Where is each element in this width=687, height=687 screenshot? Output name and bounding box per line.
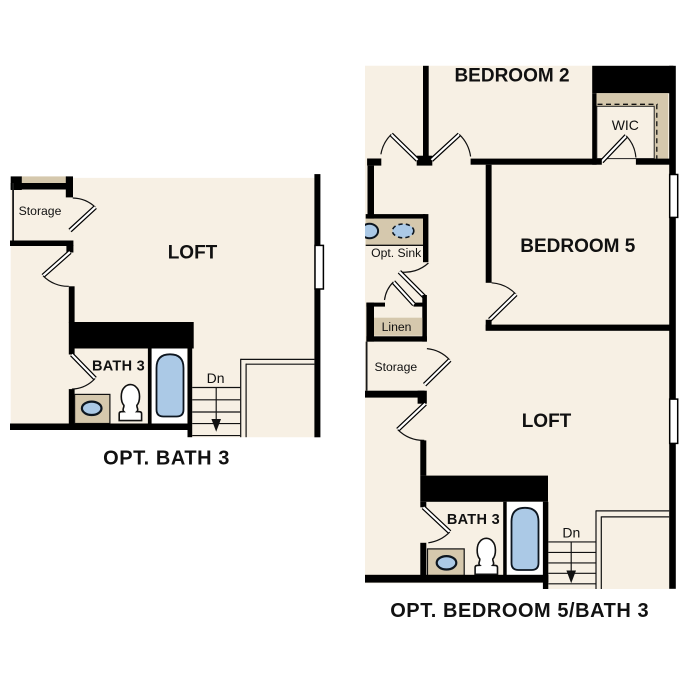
svg-text:BEDROOM 5: BEDROOM 5	[520, 236, 636, 257]
svg-text:LOFT: LOFT	[522, 411, 572, 432]
svg-text:Dn: Dn	[562, 525, 580, 541]
svg-text:OPT. BEDROOM 5/BATH 3: OPT. BEDROOM 5/BATH 3	[390, 600, 649, 622]
svg-text:Storage: Storage	[19, 204, 62, 218]
svg-text:BEDROOM 2: BEDROOM 2	[454, 66, 569, 87]
svg-text:Dn: Dn	[207, 370, 225, 386]
svg-text:BATH 3: BATH 3	[447, 512, 500, 528]
svg-text:Linen: Linen	[382, 320, 412, 334]
svg-text:LOFT: LOFT	[168, 242, 218, 263]
svg-text:WIC: WIC	[612, 117, 639, 133]
svg-text:Opt. Sink: Opt. Sink	[371, 246, 422, 260]
svg-text:OPT. BATH 3: OPT. BATH 3	[103, 447, 230, 469]
svg-text:BATH 3: BATH 3	[92, 358, 145, 374]
svg-text:Storage: Storage	[374, 360, 417, 374]
